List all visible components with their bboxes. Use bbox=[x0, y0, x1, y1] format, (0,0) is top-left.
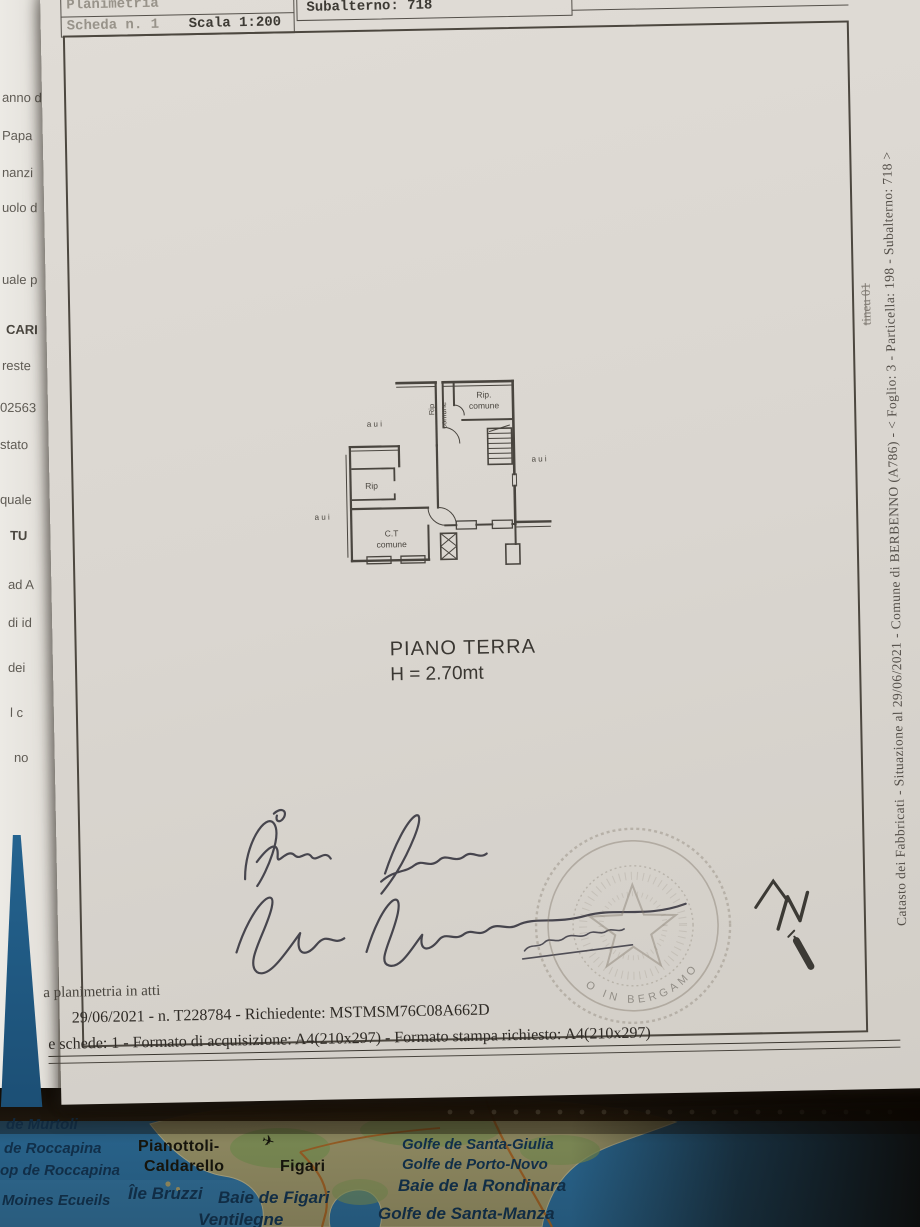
header-sheet: Scheda n. 1 bbox=[67, 17, 160, 35]
map-label-roccapina: de Roccapina bbox=[4, 1140, 102, 1157]
svg-text:O IN BERGAMO: O IN BERGAMO bbox=[583, 961, 702, 1007]
page-fragment: uolo d bbox=[2, 200, 38, 215]
document-paper: Planimetria Scheda n. 1 Scala 1:200 Part… bbox=[40, 0, 920, 1105]
page-fragment: nanzi bbox=[2, 165, 33, 180]
page-fragment: no bbox=[14, 750, 29, 765]
side-caption-vertical: Catasto dei Fabbricati - Situazione al 2… bbox=[878, 89, 913, 989]
corridor-label-comune: comune bbox=[439, 402, 449, 429]
map-label-cap-roccapina: op de Roccapina bbox=[0, 1162, 120, 1179]
page-fragment: ad A bbox=[8, 577, 34, 592]
map-background: de Murtoli de Roccapina op de Roccapina … bbox=[0, 1088, 920, 1227]
page-fragment: l c bbox=[10, 705, 23, 720]
header-scale: Scala 1:200 bbox=[189, 14, 282, 32]
header-plan-label: Planimetria bbox=[66, 0, 159, 13]
page-fragment: uale p bbox=[2, 272, 38, 287]
map-label-santa-giulia: Golfe de Santa-Giulia bbox=[402, 1136, 554, 1153]
room-label-ct-2: comune bbox=[376, 539, 407, 550]
page-fragment: anno d bbox=[2, 90, 42, 105]
page-fragment: quale bbox=[0, 492, 32, 507]
map-label-ile-bruzzi: Île Bruzzi bbox=[128, 1184, 203, 1204]
room-label-rip-comune-2: comune bbox=[469, 400, 500, 411]
map-label-caldarello: Caldarello bbox=[144, 1158, 224, 1176]
floor-plan-drawing: Rip. comune Rip comune Rip C.T comune a … bbox=[305, 365, 559, 592]
page-fragment: 02563 bbox=[0, 400, 36, 415]
page-fragment: CARI bbox=[6, 322, 38, 337]
aui-label-right: a u i bbox=[531, 454, 547, 463]
header-subalterno: Subalterno: 718 bbox=[306, 0, 432, 16]
aui-label-topleft: a u i bbox=[367, 420, 383, 429]
photo-scene: anno d Papa nanzi uolo d uale p CARI res… bbox=[0, 0, 920, 1227]
map-label-baie-figari: Baie de Figari bbox=[218, 1188, 329, 1208]
page-fragment: reste bbox=[2, 358, 31, 373]
map-label-santa-manza: Golfe de Santa-Manza bbox=[378, 1204, 555, 1224]
aui-label-bottomleft: a u i bbox=[315, 513, 331, 522]
map-label-moines-ecueils: Moines Ecueils bbox=[2, 1192, 110, 1209]
page-fragment: stato bbox=[0, 437, 28, 452]
plan-height: H = 2.70mt bbox=[390, 663, 484, 687]
map-label-ventilegne: Ventilegne bbox=[198, 1210, 283, 1227]
north-arrow bbox=[747, 870, 839, 982]
room-label-rip: Rip bbox=[365, 481, 378, 491]
map-label-rondinara: Baie de la Rondinara bbox=[398, 1176, 566, 1196]
page-fragment: di id bbox=[8, 615, 32, 630]
plan-title: PIANO TERRA bbox=[390, 636, 537, 662]
side-annotation: tineu 01 bbox=[858, 283, 875, 326]
stamp-arc-text: O IN BERGAMO bbox=[583, 961, 702, 1007]
map-label-murtoli: de Murtoli bbox=[6, 1116, 78, 1133]
header-rule bbox=[572, 4, 848, 11]
room-label-rip-comune: Rip. bbox=[476, 389, 491, 399]
map-label-figari-town: Figari bbox=[280, 1158, 325, 1176]
corridor-label-rip: Rip bbox=[427, 404, 436, 415]
page-fragment: dei bbox=[8, 660, 26, 675]
map-label-pianottoli: Pianottoli- bbox=[138, 1138, 220, 1156]
page-fragment: TU bbox=[10, 528, 27, 543]
footer-line-atti: a planimetria in atti bbox=[43, 983, 160, 1002]
map-label-porto-novo: Golfe de Porto-Novo bbox=[402, 1156, 548, 1173]
page-fragment: Papa bbox=[2, 128, 33, 143]
floor-plan: Rip. comune Rip comune Rip C.T comune a … bbox=[305, 365, 559, 592]
room-label-ct: C.T bbox=[385, 528, 399, 538]
official-stamp: O IN BERGAMO bbox=[524, 817, 742, 1035]
